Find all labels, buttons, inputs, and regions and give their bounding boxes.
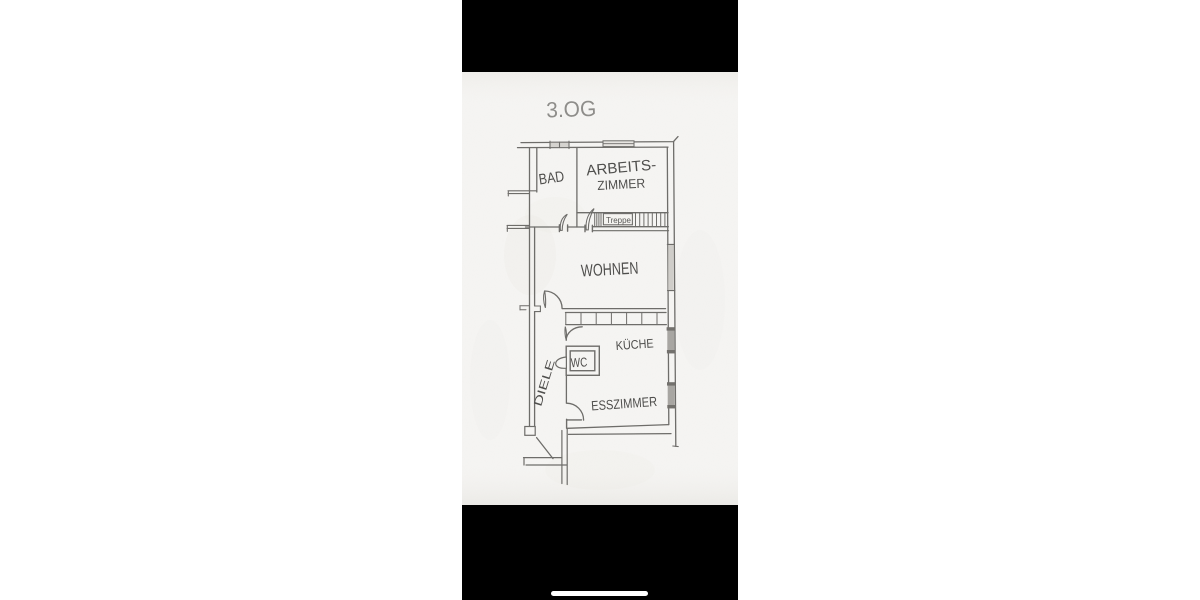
svg-text:ZIMMER: ZIMMER (597, 176, 646, 193)
svg-text:BAD: BAD (538, 168, 566, 188)
svg-text:3.OG: 3.OG (546, 96, 597, 123)
svg-text:WOHNEN: WOHNEN (581, 259, 639, 281)
svg-text:Treppe: Treppe (606, 215, 631, 225)
svg-text:WC: WC (570, 354, 587, 370)
svg-text:KÜCHE: KÜCHE (615, 336, 654, 353)
